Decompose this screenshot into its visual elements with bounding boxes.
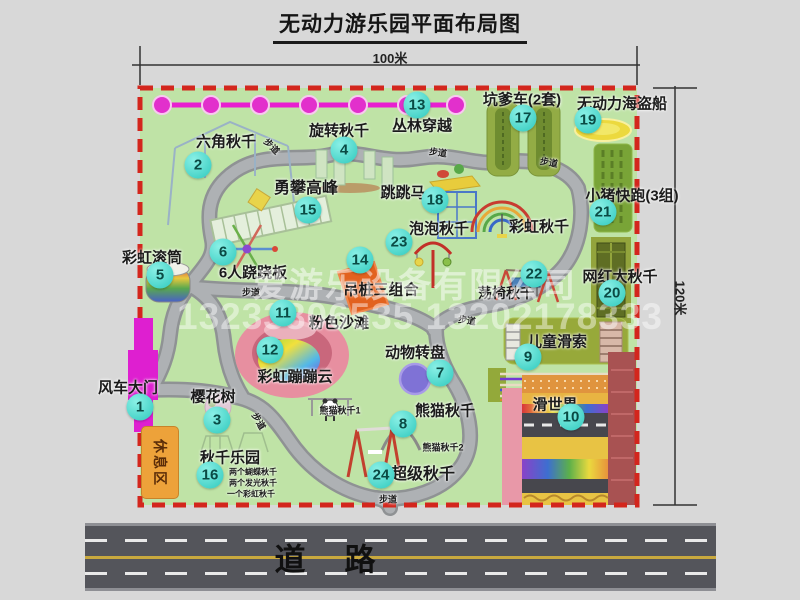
rainbow-drum-art: [146, 262, 190, 302]
piggy-run-art: [594, 144, 632, 232]
road-lane-dash: [85, 539, 716, 542]
rainbow-cloud-art: [258, 339, 320, 381]
pink-beach-art: [235, 312, 349, 398]
park-layout-poster: 无动力游乐园平面布局图 100米 120米: [0, 0, 800, 600]
big-net-swing-art: [591, 237, 631, 323]
dimension-top-label: 100米: [373, 48, 408, 67]
road-center-line: [85, 556, 716, 559]
animal-turntable-art: [400, 364, 430, 394]
pirate-ship-art: [575, 119, 631, 141]
road: 道 路: [85, 523, 716, 591]
road-lane-dash: [85, 572, 716, 575]
rest-area-label: 休息区: [150, 439, 170, 487]
road-label: 道 路: [275, 535, 380, 580]
page-title: 无动力游乐园平面布局图: [273, 8, 527, 44]
dimension-right-label: 120米: [672, 281, 691, 316]
rest-area-box: 休息区: [142, 427, 178, 498]
